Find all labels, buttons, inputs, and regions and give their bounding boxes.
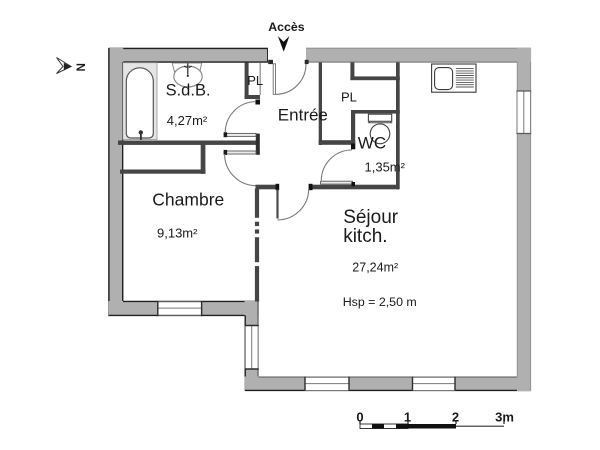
svg-text:1,35m²: 1,35m² bbox=[365, 160, 406, 175]
svg-text:PL: PL bbox=[341, 90, 357, 105]
svg-text:9,13m²: 9,13m² bbox=[157, 226, 198, 241]
svg-text:Hsp = 2,50 m: Hsp = 2,50 m bbox=[343, 295, 417, 309]
svg-text:4,27m²: 4,27m² bbox=[167, 113, 208, 128]
svg-text:PL: PL bbox=[247, 73, 263, 88]
svg-text:2: 2 bbox=[452, 410, 459, 425]
svg-text:WC: WC bbox=[358, 133, 386, 152]
svg-text:3m: 3m bbox=[495, 410, 514, 425]
svg-text:Chambre: Chambre bbox=[152, 190, 224, 210]
svg-text:N: N bbox=[73, 63, 85, 71]
svg-text:S.d.B.: S.d.B. bbox=[166, 81, 211, 99]
svg-text:Entrée: Entrée bbox=[278, 106, 328, 125]
svg-text:kitch.: kitch. bbox=[343, 226, 387, 247]
svg-text:Accès: Accès bbox=[268, 20, 304, 34]
svg-text:1: 1 bbox=[404, 410, 411, 425]
svg-text:27,24m²: 27,24m² bbox=[352, 260, 398, 274]
svg-text:0: 0 bbox=[356, 410, 363, 425]
svg-text:Séjour: Séjour bbox=[343, 207, 399, 228]
